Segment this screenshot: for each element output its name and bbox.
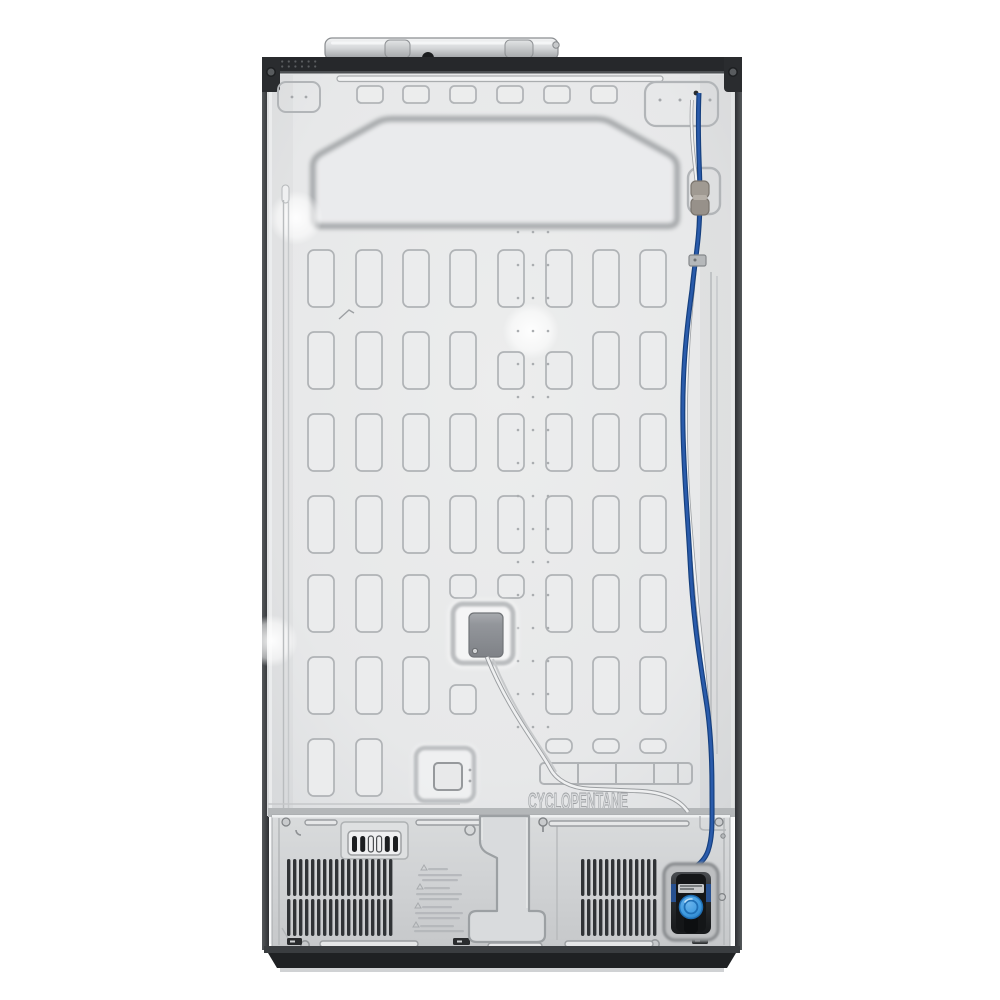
trim-vent-dot: [314, 65, 316, 67]
rivet-dot: [517, 726, 520, 729]
emboss-rect: [593, 739, 619, 753]
rivet-dot: [547, 561, 550, 564]
caution-text-line: [420, 925, 454, 927]
caution-text-line: [428, 868, 448, 870]
vent-slat: [305, 859, 308, 896]
emboss-small-rect: [357, 86, 383, 103]
rivet-dot: [532, 528, 535, 531]
rivet-dot: [547, 297, 550, 300]
rivet-dot: [517, 297, 520, 300]
vent-slat: [587, 899, 590, 936]
rivet-dot: [517, 594, 520, 597]
rivet-dot: [517, 264, 520, 267]
terminal-slot: [368, 836, 373, 852]
vent-slat: [335, 899, 338, 936]
vent-slat: [323, 859, 326, 896]
vent-slat: [587, 859, 590, 896]
rivet-dot: [532, 264, 535, 267]
vent-slat: [311, 859, 314, 896]
emboss-rect: [450, 414, 476, 471]
trim-vent-dot: [294, 60, 296, 62]
rivet-dot: [547, 726, 550, 729]
vent-slat: [293, 899, 296, 936]
vent-slat: [647, 899, 650, 936]
emboss-rect: [593, 496, 619, 553]
vent-slat: [353, 899, 356, 936]
emboss-rect: [356, 657, 382, 714]
caution-text-line: [422, 879, 458, 881]
rivet-dot: [547, 363, 550, 366]
vent-slat: [605, 899, 608, 936]
vent-slat: [377, 899, 380, 936]
rivet-dot: [517, 462, 520, 465]
trim-vent-dot: [314, 60, 316, 62]
vent-slat: [641, 899, 644, 936]
vent-slat: [629, 859, 632, 896]
rivet-dot: [532, 627, 535, 630]
emboss-rect: [546, 496, 572, 553]
emboss-trapezoid: [313, 119, 677, 226]
emboss-rect: [403, 575, 429, 632]
rivet-dot: [532, 462, 535, 465]
emboss-rect: [308, 657, 334, 714]
rivet-dot: [517, 693, 520, 696]
vent-slat: [599, 859, 602, 896]
emboss-rect: [356, 575, 382, 632]
terminal-cover: [341, 822, 408, 859]
terminal-slot: [385, 836, 390, 852]
emboss-rect: [356, 414, 382, 471]
vent-slat: [617, 859, 620, 896]
rivet-dot: [517, 429, 520, 432]
emboss-rect: [450, 575, 476, 598]
caution-text-line: [415, 912, 463, 914]
cabinet-base: [264, 946, 740, 972]
emboss-rect: [403, 332, 429, 389]
top-vent-tray: [325, 38, 559, 60]
emboss-rect: [593, 414, 619, 471]
emboss-rect: [308, 575, 334, 632]
vent-slat: [311, 899, 314, 936]
vent-slat: [611, 859, 614, 896]
vent-slat: [635, 859, 638, 896]
emboss-rect: [308, 250, 334, 307]
vent-slat: [317, 859, 320, 896]
emboss-small-rect: [544, 86, 570, 103]
vent-slat: [287, 859, 290, 896]
bracket-screw: [267, 68, 275, 76]
emboss-rect: [640, 414, 666, 471]
vent-slat: [299, 859, 302, 896]
vent-slat: [389, 859, 392, 896]
caution-text-line: [418, 874, 462, 876]
emboss-rect: [498, 352, 524, 389]
emboss-rect: [450, 685, 476, 714]
emboss-rect: [403, 414, 429, 471]
emboss-rect: [593, 332, 619, 389]
caution-text-line: [414, 930, 464, 932]
emboss-rect: [498, 496, 524, 553]
caution-text-line: [418, 917, 460, 919]
emboss-rect: [356, 250, 382, 307]
rivet-dot: [532, 495, 535, 498]
vent-slat: [653, 899, 656, 936]
vent-slat: [641, 859, 644, 896]
tray-screw: [553, 42, 559, 48]
vent-slat: [359, 899, 362, 936]
emboss-rect: [308, 496, 334, 553]
rivet-dot: [547, 495, 550, 498]
emboss-rect: [593, 657, 619, 714]
emboss-small-rect: [497, 86, 523, 103]
vent-slat: [623, 899, 626, 936]
vent-slat: [635, 899, 638, 936]
vent-slat: [365, 859, 368, 896]
trim-vent-dot: [288, 60, 290, 62]
trim-vent-dot: [288, 65, 290, 67]
emboss-rect: [308, 332, 334, 389]
emboss-rect: [640, 657, 666, 714]
vent-slat: [371, 899, 374, 936]
access-panel: [448, 600, 518, 668]
vent-slat: [305, 899, 308, 936]
rivet-dot: [547, 231, 550, 234]
bracket-screw: [729, 68, 737, 76]
terminal-slot: [360, 836, 365, 852]
rivet-dot: [532, 693, 535, 696]
trim-vent-dot: [308, 60, 310, 62]
emboss-rect: [640, 250, 666, 307]
emboss-rect: [640, 332, 666, 389]
emboss-rect: [498, 250, 524, 307]
vent-slat: [593, 899, 596, 936]
rivet-dot: [532, 660, 535, 663]
vent-slat: [323, 899, 326, 936]
tray-channel: [505, 40, 533, 58]
trim-vent-dot: [301, 65, 303, 67]
refrigerator-back-illustration: CYCLOPENTANE: [0, 0, 1000, 1000]
vent-slat: [365, 899, 368, 936]
emboss-rect: [308, 414, 334, 471]
terminal-slot: [352, 836, 357, 852]
emboss-rect: [640, 575, 666, 632]
rivet-dot: [547, 429, 550, 432]
tube-coupler: [691, 181, 709, 215]
vent-slat: [389, 899, 392, 936]
terminal-slot: [393, 836, 398, 852]
rivet-dot: [547, 528, 550, 531]
trim-vent-dot: [308, 65, 310, 67]
vent-slat: [329, 859, 332, 896]
water-inlet-valve: [664, 864, 718, 940]
rivet-dot: [547, 264, 550, 267]
terminal-slot: [377, 836, 382, 852]
emboss-small-rect: [403, 86, 429, 103]
emboss-rect: [498, 575, 524, 598]
trim-vent-dot: [301, 60, 303, 62]
emboss-rect: [356, 332, 382, 389]
rivet-dot: [517, 495, 520, 498]
rivet-dot: [547, 627, 550, 630]
emboss-rect: [403, 496, 429, 553]
vent-slat: [317, 899, 320, 936]
emboss-rect: [546, 657, 572, 714]
vent-slat: [371, 859, 374, 896]
emboss-rect: [356, 739, 382, 796]
rivet-dot: [532, 363, 535, 366]
vent-slat: [299, 899, 302, 936]
emboss-rect: [546, 414, 572, 471]
rivet-dot: [532, 297, 535, 300]
rivet-dot: [532, 594, 535, 597]
vent-slat: [287, 899, 290, 936]
caution-text-line: [424, 887, 450, 889]
emboss-rect: [640, 496, 666, 553]
rivet-dot: [547, 330, 550, 333]
vent-slat: [629, 899, 632, 936]
vent-slat: [605, 859, 608, 896]
vent-slat: [359, 859, 362, 896]
rivet-dot: [517, 330, 520, 333]
tube-clip: [689, 255, 706, 266]
emboss-rect: [450, 332, 476, 389]
rivet-dot: [517, 231, 520, 234]
highlight-glow: [246, 615, 298, 667]
rivet-dot: [547, 660, 550, 663]
vent-slat: [611, 899, 614, 936]
trim-vent-dot: [281, 65, 283, 67]
vent-slat: [293, 859, 296, 896]
rivet-dot: [532, 726, 535, 729]
tray-channel: [385, 40, 410, 58]
vent-slat: [593, 859, 596, 896]
emboss-rect: [356, 496, 382, 553]
emboss-rect: [640, 739, 666, 753]
vent-slat: [647, 859, 650, 896]
trim-vent-dot: [294, 65, 296, 67]
rivet-dot: [547, 462, 550, 465]
emboss-rect: [403, 657, 429, 714]
vent-slat: [581, 899, 584, 936]
vent-slat: [599, 899, 602, 936]
vent-slat: [377, 859, 380, 896]
emboss-rect: [546, 739, 572, 753]
vent-slat: [347, 899, 350, 936]
cabinet-right-edge: [735, 57, 742, 950]
emboss-rect: [498, 414, 524, 471]
rivet-dot: [532, 231, 535, 234]
vent-slat: [329, 899, 332, 936]
vent-slat: [653, 859, 656, 896]
rivet-dot: [547, 693, 550, 696]
highlight-glow: [269, 191, 323, 245]
access-panel-screw: [472, 648, 477, 653]
highlight-glow: [503, 303, 559, 359]
emboss-rect: [546, 352, 572, 389]
vent-slat: [341, 859, 344, 896]
vent-slat: [623, 859, 626, 896]
emboss-square-port: [412, 744, 478, 804]
vent-slat: [353, 859, 356, 896]
vent-slat: [347, 859, 350, 896]
emboss-rect: [450, 496, 476, 553]
vent-slat: [383, 859, 386, 896]
vent-slat: [341, 899, 344, 936]
emboss-rect: [403, 250, 429, 307]
rivet-dot: [532, 429, 535, 432]
rivet-dot: [532, 396, 535, 399]
emboss-small-rect: [591, 86, 617, 103]
product-image-refrigerator-back: CYCLOPENTANE: [0, 0, 1000, 1000]
trim-vent-dot: [281, 60, 283, 62]
rivet-dot: [517, 561, 520, 564]
rivet-dot: [532, 561, 535, 564]
rivet-dot: [517, 660, 520, 663]
emboss-rect: [546, 250, 572, 307]
rivet-dot: [532, 330, 535, 333]
vent-slat: [335, 859, 338, 896]
emboss-rect: [546, 575, 572, 632]
emboss-rect: [308, 739, 334, 796]
rivet-dot: [517, 363, 520, 366]
rivet-dot: [547, 396, 550, 399]
caution-text-line: [416, 893, 462, 895]
vent-slat: [617, 899, 620, 936]
emboss-rect: [593, 250, 619, 307]
emboss-rect: [593, 575, 619, 632]
rivet-dot: [547, 594, 550, 597]
rivet-dot: [517, 528, 520, 531]
emboss-rect: [450, 250, 476, 307]
caution-text-line: [419, 898, 459, 900]
emboss-small-rect: [450, 86, 476, 103]
vent-slat: [581, 859, 584, 896]
caution-text-line: [422, 906, 452, 908]
vent-slat: [383, 899, 386, 936]
top-vent-slot: [337, 76, 663, 82]
rivet-dot: [517, 396, 520, 399]
